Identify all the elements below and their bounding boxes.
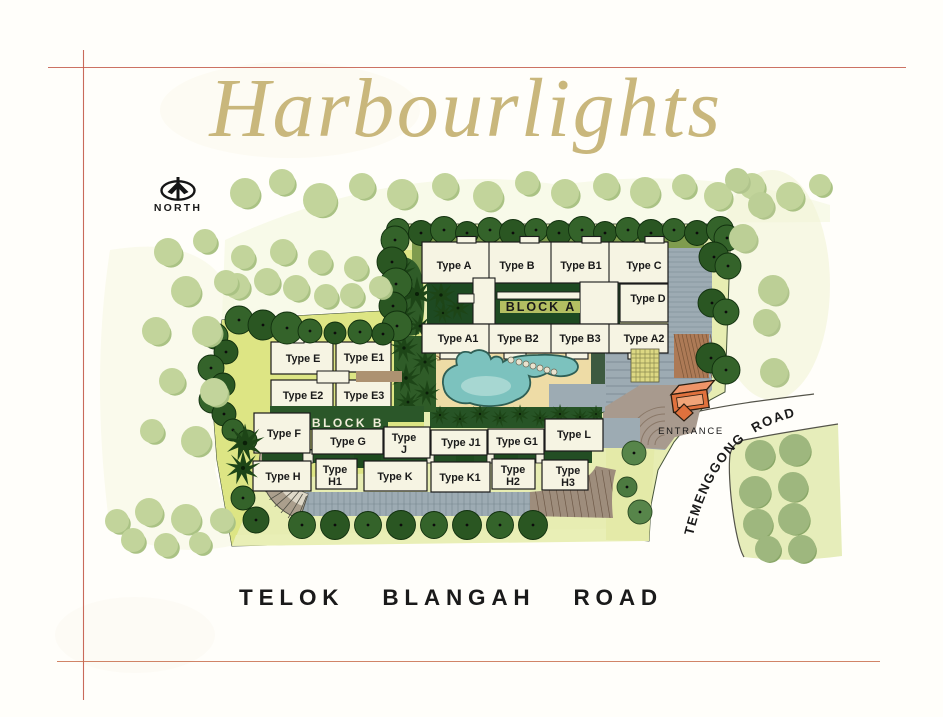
svg-text:Type E: Type E <box>286 353 321 365</box>
svg-text:Type E1: Type E1 <box>344 352 385 364</box>
svg-text:ENTRANCE: ENTRANCE <box>658 426 724 437</box>
svg-text:Type K: Type K <box>377 471 412 483</box>
svg-text:H3: H3 <box>561 477 575 489</box>
svg-text:Type: Type <box>323 464 347 476</box>
svg-text:Type J1: Type J1 <box>441 437 480 449</box>
svg-text:Type G1: Type G1 <box>496 436 538 448</box>
svg-text:Type L: Type L <box>557 429 591 441</box>
svg-text:BLOCK B: BLOCK B <box>312 416 384 430</box>
svg-text:NORTH: NORTH <box>154 202 202 214</box>
svg-text:Type F: Type F <box>267 428 301 440</box>
svg-text:Type: Type <box>392 432 416 444</box>
svg-text:Type B2: Type B2 <box>497 333 538 345</box>
svg-text:BLOCK A: BLOCK A <box>506 300 576 314</box>
svg-text:Type: Type <box>501 464 525 476</box>
svg-text:H2: H2 <box>506 476 520 488</box>
svg-text:H1: H1 <box>328 476 342 488</box>
svg-text:Type K1: Type K1 <box>439 472 480 484</box>
svg-text:Type H: Type H <box>265 471 300 483</box>
svg-text:Type D: Type D <box>630 293 665 305</box>
svg-text:Type E3: Type E3 <box>344 390 385 402</box>
svg-text:Type: Type <box>556 465 580 477</box>
svg-text:Harbourlights: Harbourlights <box>208 62 722 155</box>
svg-text:Type B1: Type B1 <box>560 260 601 272</box>
svg-text:Type C: Type C <box>626 260 661 272</box>
svg-text:Type B3: Type B3 <box>559 333 600 345</box>
svg-text:Type A: Type A <box>437 260 472 272</box>
svg-text:J: J <box>401 444 407 456</box>
svg-text:Type A2: Type A2 <box>624 333 665 345</box>
svg-text:Type A1: Type A1 <box>438 333 479 345</box>
svg-text:Type E2: Type E2 <box>283 390 324 402</box>
svg-text:TELOK BLANGAH ROAD: TELOK BLANGAH ROAD <box>239 585 663 610</box>
svg-text:Type B: Type B <box>499 260 534 272</box>
svg-text:Type G: Type G <box>330 436 366 448</box>
